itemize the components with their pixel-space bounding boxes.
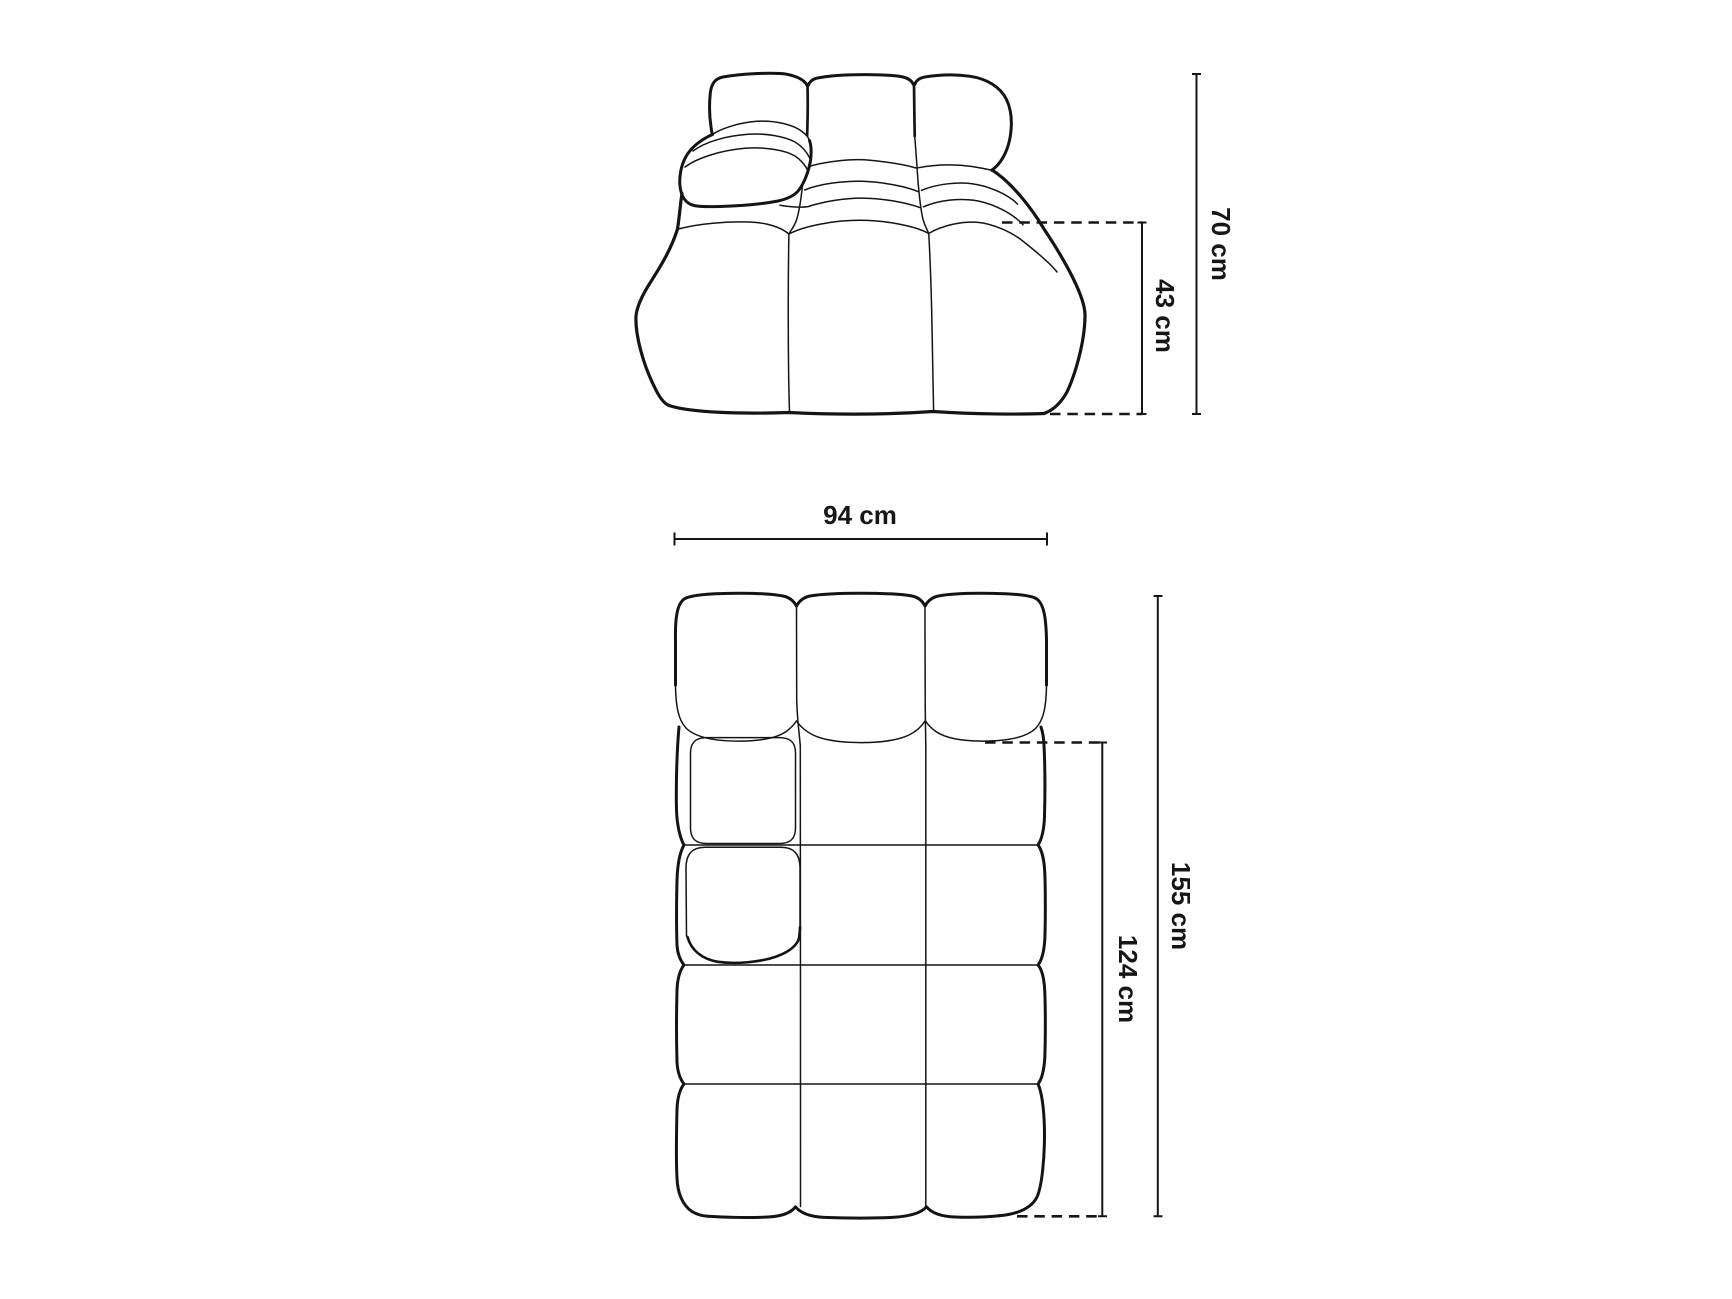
svg-text:70 cm: 70 cm	[1206, 207, 1236, 281]
svg-text:124 cm: 124 cm	[1113, 935, 1143, 1023]
svg-text:155 cm: 155 cm	[1166, 862, 1196, 950]
svg-text:43 cm: 43 cm	[1150, 279, 1180, 353]
svg-text:94 cm: 94 cm	[823, 500, 897, 530]
